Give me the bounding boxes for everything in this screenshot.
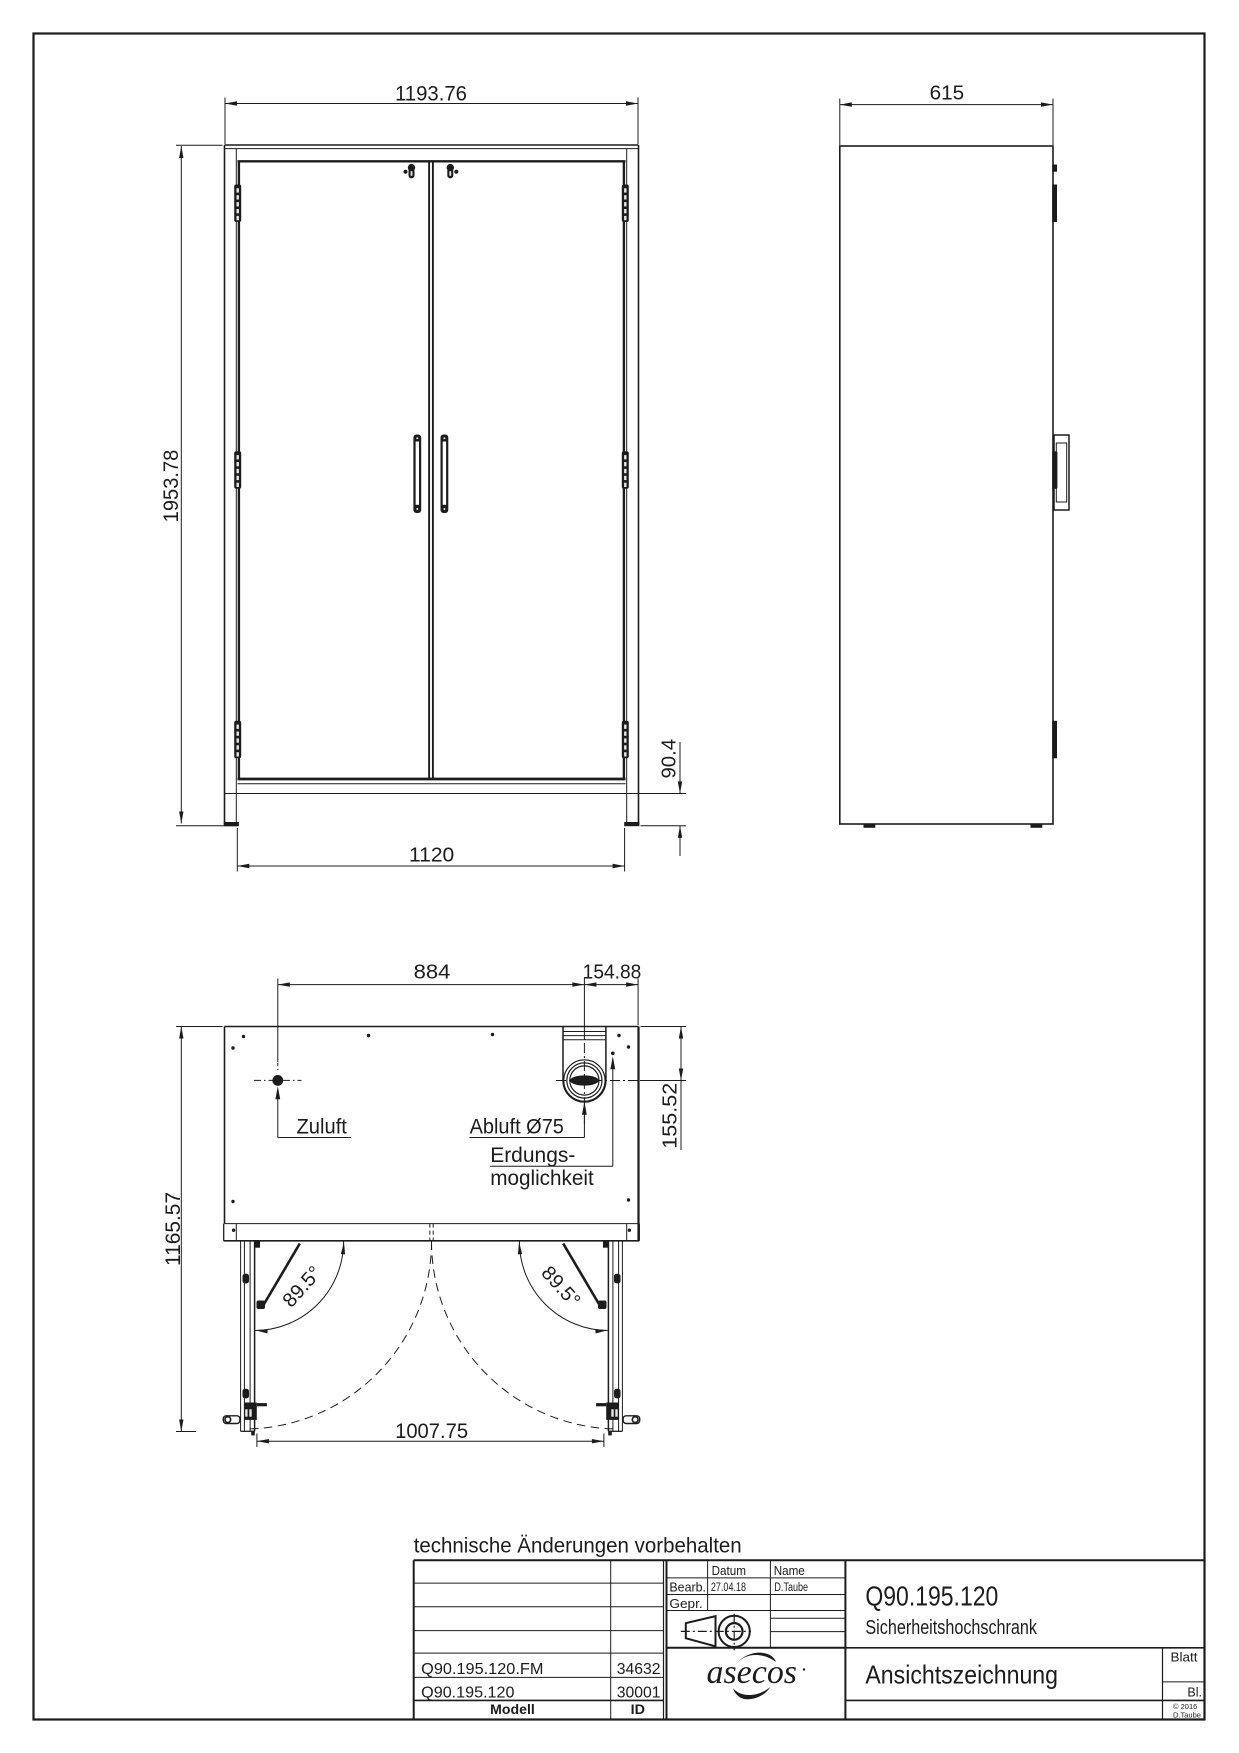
svg-text:Modell: Modell bbox=[490, 1701, 535, 1717]
svg-text:90.4: 90.4 bbox=[658, 739, 681, 779]
svg-text:D.Taube: D.Taube bbox=[774, 1582, 808, 1594]
svg-text:30001: 30001 bbox=[617, 1684, 661, 1701]
svg-text:Q90.195.120: Q90.195.120 bbox=[865, 1581, 998, 1612]
svg-text:Name: Name bbox=[774, 1564, 805, 1578]
svg-text:Ansichtszeichnung: Ansichtszeichnung bbox=[865, 1659, 1058, 1689]
svg-text:D.Taube: D.Taube bbox=[1173, 1711, 1201, 1720]
svg-text:154.88: 154.88 bbox=[583, 960, 642, 983]
svg-text:1120: 1120 bbox=[409, 844, 454, 867]
svg-text:34632: 34632 bbox=[617, 1661, 661, 1678]
svg-text:technische Änderungen vorbehal: technische Änderungen vorbehalten bbox=[414, 1534, 742, 1558]
svg-text:Q90.195.120: Q90.195.120 bbox=[421, 1684, 514, 1701]
svg-text:27.04.18: 27.04.18 bbox=[711, 1582, 746, 1594]
svg-text:615: 615 bbox=[930, 82, 965, 105]
svg-text:Zuluft: Zuluft bbox=[297, 1116, 348, 1139]
svg-text:ID: ID bbox=[631, 1701, 645, 1717]
svg-text:884: 884 bbox=[414, 960, 451, 983]
svg-text:1193.76: 1193.76 bbox=[395, 82, 467, 105]
svg-text:Q90.195.120.FM: Q90.195.120.FM bbox=[421, 1661, 543, 1678]
svg-text:Erdungs-: Erdungs- bbox=[490, 1144, 575, 1167]
svg-text:Abluft Ø75: Abluft Ø75 bbox=[470, 1116, 564, 1139]
svg-text:155.52: 155.52 bbox=[659, 1083, 682, 1149]
svg-text:Sicherheitshochschrank: Sicherheitshochschrank bbox=[865, 1617, 1037, 1639]
svg-text:asecos: asecos bbox=[707, 1654, 798, 1691]
svg-text:Gepr.: Gepr. bbox=[669, 1597, 702, 1611]
svg-text:Bearb.: Bearb. bbox=[669, 1581, 706, 1595]
svg-text:moglichkeit: moglichkeit bbox=[490, 1167, 594, 1190]
svg-text:1007.75: 1007.75 bbox=[395, 1420, 468, 1443]
svg-text:Bl.: Bl. bbox=[1187, 1686, 1202, 1700]
svg-text:Blatt: Blatt bbox=[1171, 1650, 1199, 1664]
svg-text:1953.78: 1953.78 bbox=[160, 450, 183, 523]
svg-text:Datum: Datum bbox=[712, 1564, 746, 1578]
